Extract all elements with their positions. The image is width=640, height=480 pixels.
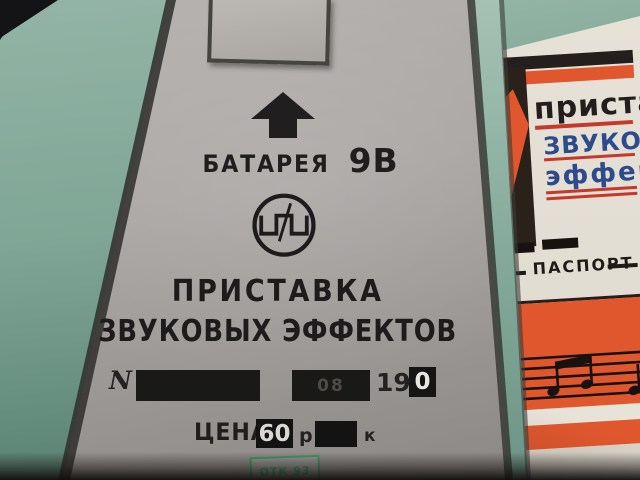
device-title-line1: ПРИСТАВКА xyxy=(172,274,384,309)
kopecks-blackout xyxy=(315,421,357,447)
up-arrow-icon xyxy=(251,92,315,140)
device-title: ПРИСТАВКА ЗВУКОВЫХ ЭФФЕКТОВ xyxy=(60,274,496,349)
bottom-shadow xyxy=(0,452,640,480)
year-last-digit-box: 0 xyxy=(409,367,436,397)
battery-caption: БАТАРЕЯ 9В xyxy=(158,141,438,180)
price-rubles-box: 60 xyxy=(256,419,293,448)
serial-number-blackout xyxy=(136,370,260,401)
device-title-line2: ЗВУКОВЫХ ЭФФЕКТОВ xyxy=(99,314,458,349)
cover-dash-bar xyxy=(542,238,579,250)
square-wave-logo-icon xyxy=(246,190,322,266)
kopecks-unit: к xyxy=(364,426,376,446)
batch-blackout: 08 xyxy=(292,370,370,401)
photo-sound-effects-unit: приста ЗВУКОВ эффек ПАСПОРТ xyxy=(0,0,640,480)
rubles-unit: р xyxy=(299,425,313,447)
battery-voltage: 9В xyxy=(349,141,399,180)
serial-number-prefix: N xyxy=(109,366,132,395)
battery-label: БАТАРЕЯ xyxy=(203,150,330,178)
battery-compartment-door xyxy=(207,0,331,66)
